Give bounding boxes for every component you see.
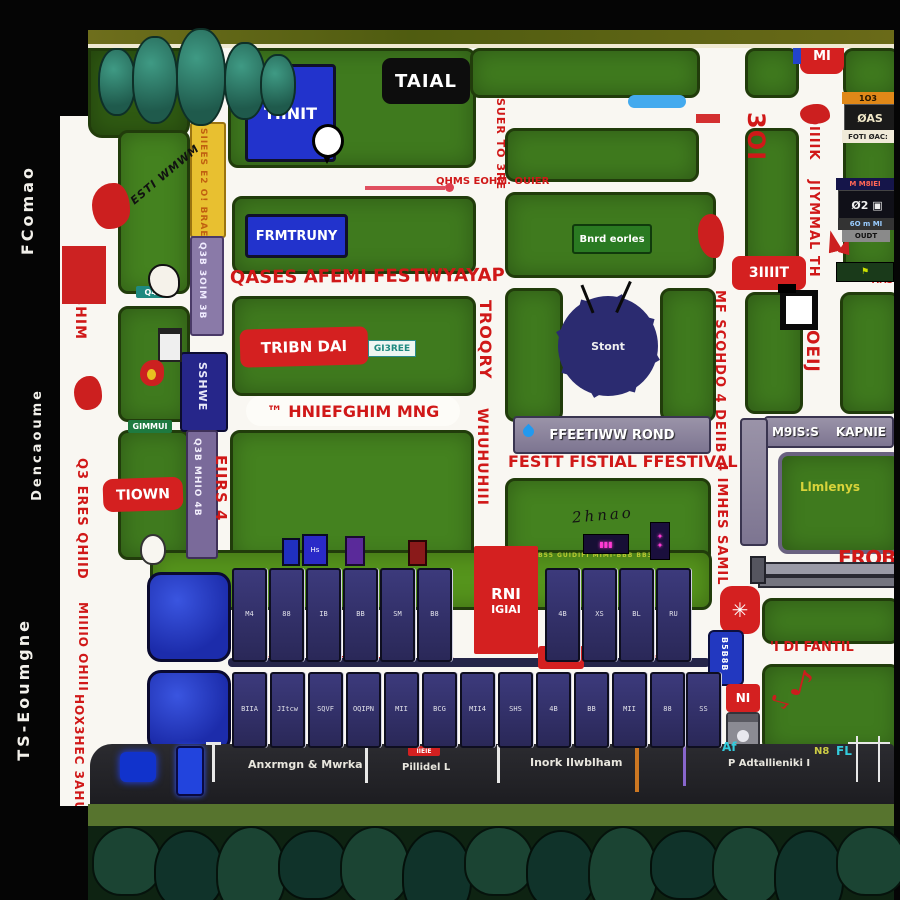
rni-building: RNI IGIAI (474, 546, 538, 654)
right-gray-bar: M9IS:S KAPNIE (764, 416, 894, 448)
booth-label: BIIA (241, 706, 258, 714)
water-drop-icon (521, 424, 537, 440)
gimmui-label: GIMMUI (133, 422, 168, 431)
booth-label: OQIPN (353, 706, 374, 714)
frmtruny-sign: FRMTRUNY (245, 214, 348, 258)
park-block (660, 288, 716, 422)
bush-icon (464, 826, 534, 896)
right-frame (894, 0, 900, 900)
hniefghim-pill: ™ HNIEFGHIM MNG (246, 396, 460, 426)
jiymmal-text: JIYMMAL TH (806, 180, 821, 278)
road-text-3: Inork Ilwblham (530, 756, 622, 769)
whuhu-text: WHUHUHIII (474, 408, 490, 506)
bench-icon (754, 556, 894, 590)
cluster1-strip: FOTI ØAC: (842, 130, 894, 143)
mini-stall (282, 538, 300, 566)
park-block (470, 48, 700, 98)
sidebar-text-bottom: TS-Eoumgne (14, 618, 33, 761)
cluster2-oudt-label: OUDT (855, 232, 877, 240)
bird-icon (140, 360, 164, 386)
sshwe-booth: SSHWE (180, 352, 228, 432)
siiit-label: 3IIIIT (749, 265, 789, 281)
ni-label: NI (736, 691, 751, 705)
booth: XS (582, 568, 617, 662)
b5b8b-label: B5B8B (720, 637, 729, 671)
troqry-text: TROQRY (476, 300, 495, 379)
booth: RU (656, 568, 691, 662)
tree-icon (132, 36, 178, 124)
booth: SQVF (308, 672, 343, 748)
booth-label: BB (356, 611, 364, 619)
booth-label: BL (632, 611, 640, 619)
booth: BL (619, 568, 654, 662)
booth-label: MII (395, 706, 408, 714)
street-lamp (497, 745, 500, 783)
red-m-blob (800, 104, 830, 124)
cluster2-oudt: OUDT (842, 230, 890, 242)
top-frame (0, 0, 900, 30)
neon-sign-vertical: ✦✦ (650, 522, 670, 560)
street-lamp (365, 745, 368, 783)
booth: BB (574, 672, 609, 748)
difantil-text: 'I DI FANTIL (770, 640, 854, 655)
road-text-4: P Adtallieniki I (728, 758, 810, 769)
booth-label: MII4 (469, 706, 486, 714)
mini-stall: Hs (302, 534, 328, 566)
cluster1-badge-label: ØAS (857, 112, 883, 125)
sidebar-text-top: FComao (18, 165, 37, 255)
marker-flag (778, 284, 796, 293)
red-mini-rect (696, 114, 720, 123)
tribn-dai-sign: TRIBN DAI (240, 326, 369, 367)
bush-icon (92, 826, 162, 896)
neon-sign: ▮▮▮ (583, 534, 629, 554)
booth: MII (612, 672, 647, 748)
sun-stage: Stont (558, 296, 658, 396)
m9iss-label: M9IS:S (772, 425, 819, 439)
tiown-label: TIOWN (116, 486, 170, 504)
booth: JItcw (270, 672, 305, 748)
booth-label: JItcw (277, 706, 298, 714)
booth: M4 (232, 568, 267, 662)
mini-stall (345, 536, 365, 566)
cluster2-strip: 6O m MI (838, 218, 894, 230)
booth: MII4 (460, 672, 495, 748)
sun-core: Stont (558, 296, 658, 396)
power-line (848, 742, 890, 744)
bnrd-eorles-sign: Bnrd eorles (572, 224, 652, 254)
booth: SHS (498, 672, 533, 748)
corner-bl (60, 806, 88, 900)
road-text-2: Pillidel L (402, 762, 450, 773)
rni-label: RNI (491, 585, 521, 603)
park-block (840, 292, 900, 414)
pink-dot (445, 183, 454, 192)
bush-icon (278, 830, 348, 900)
mi-label: MI (813, 49, 831, 64)
limlenys-text: Llmlenys (800, 480, 860, 494)
pond-label: FFEETIWW ROND (549, 428, 674, 443)
blue-pill (628, 95, 686, 108)
oeij-text: OEIJ (802, 330, 822, 373)
road-text-1: Anxrmgn & Mwrka (248, 758, 363, 771)
corner-tl (60, 0, 88, 116)
booth: 88 (269, 568, 304, 662)
booth-label: SQVF (317, 706, 334, 714)
cluster1-strip-label: FOTI ØAC: (848, 133, 888, 141)
red-splat (92, 183, 130, 229)
booth-label: B8 (430, 611, 438, 619)
bush-icon (836, 826, 900, 896)
bush-icon (712, 826, 782, 900)
booth: SS (686, 672, 721, 748)
cluster2-strip-label: 6O m MI (850, 220, 883, 228)
booth: BB (343, 568, 378, 662)
booth-label: 88 (663, 706, 671, 714)
booth: 4B (536, 672, 571, 748)
tribn-label: TRIBN DAI (261, 337, 348, 357)
bush-icon (154, 830, 224, 900)
road-icon-n8: N8 (814, 746, 829, 757)
red-rect-road (62, 246, 106, 304)
booth: 4B (545, 568, 580, 662)
q3eres-text: Q3 ERES QHIID (74, 458, 89, 580)
red-splat (74, 376, 102, 410)
yellow-strip-text: SIIEES E2 O! BRAEJ (198, 128, 208, 242)
booth-label: 88 (282, 611, 290, 619)
bush-icon (526, 830, 596, 900)
cluster1-badge: ØAS (844, 104, 896, 132)
taial-sign: TAIAL (382, 58, 470, 104)
booth-label: MII (623, 706, 636, 714)
qases-text: QASES AFEMI FESTWYAYAP (230, 265, 505, 288)
road-icon-af: Af (722, 740, 737, 754)
gimmui-sign: GIMMUI (128, 420, 172, 433)
pretzel-badge: ✳ (720, 586, 760, 634)
tiown-sign: TIOWN (102, 477, 183, 513)
booth-label: IB (319, 611, 327, 619)
booth: SM (380, 568, 415, 662)
street-lamp (206, 742, 221, 745)
booth-label: SM (393, 611, 401, 619)
booth: IB (306, 568, 341, 662)
kapnie-label: KAPNIE (836, 425, 886, 439)
cluster2-badge-label: Ø2 ▣ (851, 199, 882, 212)
purple-strip-a-text: Q3B 3OIM 3B (197, 242, 207, 319)
suer-text: SUER TO 3RE (494, 98, 507, 190)
park-block (745, 48, 799, 98)
egg-icon (140, 534, 166, 565)
bush-icon (650, 830, 720, 900)
park-block (505, 288, 563, 422)
building-icon (158, 328, 182, 362)
booth-label: XS (595, 611, 603, 619)
purple-strip-a: Q3B 3OIM 3B (190, 236, 224, 336)
eiirs-text: EIIRS 4 (212, 455, 230, 521)
imhes-text: 4 IMHES SAMIL (714, 462, 729, 585)
booth: BIIA (232, 672, 267, 748)
frmtruny-label: FRMTRUNY (256, 229, 338, 244)
purple-strip-b-text: Q3B MHIO 4B (192, 438, 202, 517)
booth-label: 4B (558, 611, 566, 619)
map-marker (780, 290, 818, 330)
bnrd-label: Bnrd eorles (579, 234, 644, 245)
blue-neon-car (120, 752, 156, 782)
booth-label: M4 (245, 611, 253, 619)
road-icon-fl: FL (836, 744, 852, 758)
tree-icon (260, 54, 296, 116)
cluster2-label: M M8IEI (849, 180, 880, 188)
sidebar-text-mid: Dencaoume (30, 388, 45, 501)
sun-label: Stont (591, 340, 625, 353)
booth: 88 (650, 672, 685, 748)
bottom-road (90, 744, 894, 808)
sshwe-text: SSHWE (196, 362, 209, 411)
booth-label: SHS (509, 706, 522, 714)
park-block (762, 598, 900, 644)
gray-strip-vertical (740, 418, 768, 546)
booth: B8 (417, 568, 452, 662)
cluster1-row: 1O3 (842, 92, 894, 104)
tree-icon (176, 28, 226, 126)
e301-text: 3OI (742, 112, 770, 161)
taial-label: TAIAL (395, 71, 457, 92)
park-block (505, 128, 699, 182)
big-blue-booth (147, 572, 231, 662)
miiio-text: MIIIIO OHIII (76, 602, 90, 692)
park-block-limlenys (778, 452, 900, 554)
cluster2-badge: Ø2 ▣ (838, 190, 896, 220)
blue-neon-sign (176, 746, 204, 796)
ni-badge: NI (726, 684, 760, 712)
mfsco-text: MF SCOHDO 4 DEIIB (712, 290, 727, 453)
booth: MII (384, 672, 419, 748)
grass-band (88, 804, 894, 826)
park-block (843, 48, 900, 98)
festival-map: Stont SIIEES E2 O! BRAEJ Q3B 3OIM 3B SSH… (0, 0, 900, 900)
mini-stall-label: Hs (311, 546, 320, 554)
booth-label: BB (587, 706, 595, 714)
moto-icon-strip: ⚑ (836, 262, 894, 282)
booth: OQIPN (346, 672, 381, 748)
tree-icon (98, 48, 136, 116)
pink-line (365, 186, 445, 190)
balloon-icon (312, 124, 342, 168)
mini-stall (408, 540, 427, 566)
road-badge-label: IIEIE (417, 748, 432, 755)
booth-label: BCG (433, 706, 446, 714)
big-blue-booth (147, 670, 231, 752)
festt-text: FESTT FISTIAL FFESTIVAL (508, 452, 738, 471)
street-lamp (212, 742, 215, 782)
igiai-label: IGIAI (491, 603, 521, 616)
bush-icon (340, 826, 410, 900)
booth-label: SS (699, 706, 707, 714)
gi3ree-sign: GI3REE (368, 340, 416, 357)
booth: BCG (422, 672, 457, 748)
cluster1-label: 1O3 (859, 94, 877, 103)
festival-pond-bar: FFEETIWW ROND (513, 416, 711, 454)
cluster2-row: M M8IEI (836, 178, 894, 190)
gi3ree-label: GI3REE (374, 344, 410, 354)
hniefghim-label: ™ HNIEFGHIM MNG (267, 402, 440, 421)
yellow-strip: SIIEES E2 O! BRAEJ (190, 122, 226, 238)
booth-label: RU (669, 611, 677, 619)
booth-label: 4B (549, 706, 557, 714)
